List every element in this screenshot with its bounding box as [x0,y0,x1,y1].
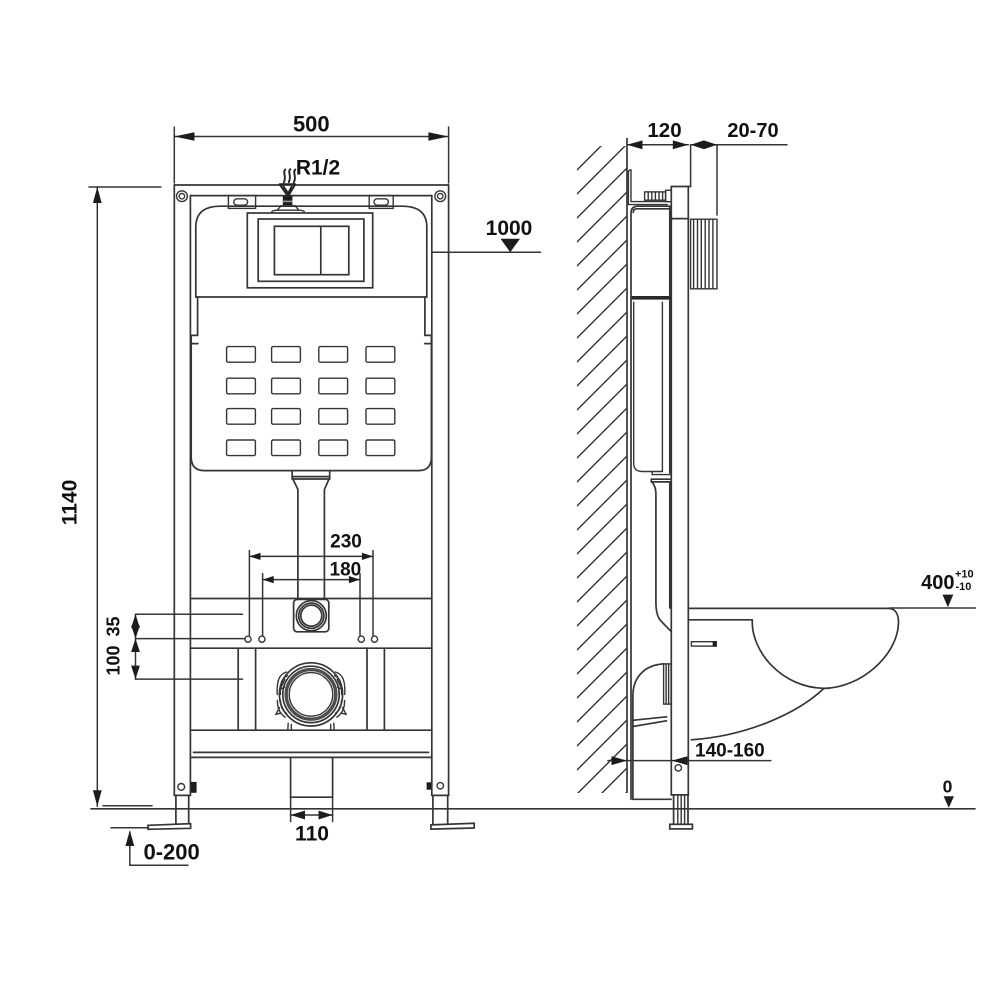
svg-text:0-200: 0-200 [144,840,200,865]
svg-text:100: 100 [104,645,124,675]
svg-text:400: 400 [921,572,954,594]
svg-text:20-70: 20-70 [727,120,778,142]
svg-text:-10: -10 [956,581,972,593]
svg-text:R1/2: R1/2 [296,157,340,180]
svg-text:120: 120 [647,119,681,142]
svg-text:+10: +10 [955,569,974,581]
svg-text:140-160: 140-160 [695,741,765,762]
svg-text:230: 230 [330,532,362,553]
svg-text:35: 35 [104,616,124,636]
svg-text:1000: 1000 [486,217,533,240]
svg-text:0: 0 [943,777,953,797]
svg-text:110: 110 [295,823,329,846]
svg-text:180: 180 [330,560,362,581]
svg-text:500: 500 [293,112,330,137]
svg-text:1140: 1140 [59,480,82,526]
